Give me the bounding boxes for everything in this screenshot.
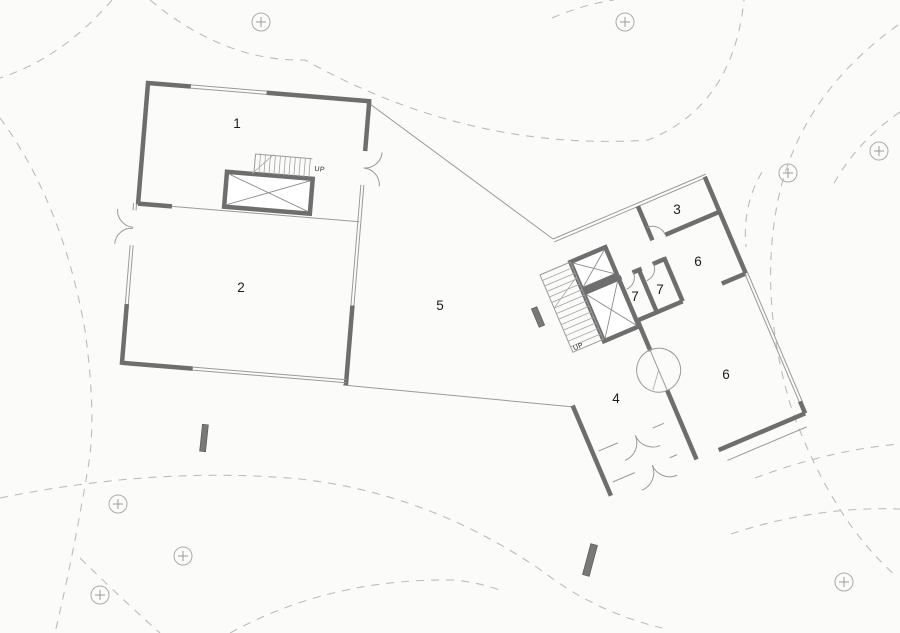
wall bbox=[146, 83, 191, 87]
tree-trunk-marker-icon bbox=[91, 586, 109, 604]
tree-trunk-marker-icon bbox=[109, 495, 127, 513]
column-marker bbox=[582, 544, 597, 577]
tree-canopy-arc bbox=[0, 118, 92, 633]
tree-trunk-marker-icon bbox=[616, 13, 634, 31]
column-marker bbox=[200, 424, 209, 451]
floor-plan-drawing: UP bbox=[0, 0, 900, 633]
room-label-5: 5 bbox=[436, 298, 444, 313]
tree-canopy-arcs bbox=[0, 0, 900, 633]
wall bbox=[138, 81, 148, 205]
tree-canopy-arc bbox=[0, 0, 112, 78]
door-swing-arc bbox=[635, 428, 660, 453]
room-label-1: 1 bbox=[233, 116, 241, 131]
wall bbox=[722, 273, 746, 283]
window bbox=[191, 85, 267, 91]
room-label-3: 3 bbox=[673, 202, 681, 217]
door-swing-arc bbox=[635, 465, 660, 490]
tree-canopy-arc bbox=[552, 0, 614, 18]
deck-edge-lines bbox=[343, 104, 574, 407]
room-label-6-upper: 6 bbox=[694, 254, 702, 269]
room-label-6-lower: 6 bbox=[722, 367, 730, 382]
window bbox=[191, 88, 267, 94]
annex-wall bbox=[613, 473, 635, 482]
tree-canopy-arc bbox=[771, 25, 898, 577]
tree-trunk-marker-icon bbox=[779, 164, 797, 182]
wall bbox=[667, 390, 696, 459]
door-swing-arc bbox=[115, 227, 133, 245]
wall bbox=[122, 363, 193, 369]
tree-canopy-arc bbox=[832, 112, 900, 187]
door-swing-arc bbox=[618, 435, 643, 460]
tree-canopy-arc bbox=[731, 509, 900, 534]
room-label-2: 2 bbox=[237, 280, 245, 295]
wall bbox=[639, 270, 657, 312]
wall bbox=[346, 306, 353, 386]
floor-plan-canvas: UP bbox=[0, 0, 900, 633]
door-swing-arc bbox=[364, 151, 382, 169]
window bbox=[133, 203, 134, 210]
wall bbox=[638, 301, 683, 320]
door-swing-arc bbox=[652, 458, 677, 483]
deck-edge-upper bbox=[370, 104, 553, 239]
room-label-7-right: 7 bbox=[656, 282, 664, 297]
annex-wall bbox=[670, 455, 677, 458]
wall bbox=[122, 304, 127, 365]
room-label-4: 4 bbox=[612, 391, 620, 406]
wall bbox=[800, 401, 805, 413]
wall bbox=[365, 101, 369, 151]
tree-trunk-marker-icon bbox=[252, 13, 270, 31]
wall bbox=[638, 206, 652, 240]
tree-trunk-marker-icon bbox=[835, 573, 853, 591]
annex-wall bbox=[653, 423, 664, 428]
annex-wall bbox=[598, 443, 617, 451]
window bbox=[193, 370, 346, 383]
door-swing-arc bbox=[116, 209, 134, 227]
tree-trunk-markers bbox=[91, 13, 888, 604]
tree-canopy-arc bbox=[745, 172, 762, 247]
wall bbox=[664, 257, 683, 301]
window bbox=[193, 367, 346, 380]
circular-element-radial bbox=[647, 370, 665, 390]
tree-canopy-arc bbox=[230, 580, 502, 633]
wall bbox=[705, 177, 746, 274]
tree-trunk-marker-icon bbox=[870, 142, 888, 160]
wall bbox=[719, 413, 806, 450]
stair-up-label-left: UP bbox=[314, 166, 325, 174]
building-right: UP bbox=[510, 174, 812, 508]
wall bbox=[267, 93, 372, 102]
tree-trunk-marker-icon bbox=[174, 547, 192, 565]
deck-edge-lower bbox=[343, 385, 574, 407]
column-marker bbox=[531, 307, 544, 328]
wall bbox=[573, 406, 611, 496]
room-label-7-left: 7 bbox=[631, 289, 639, 304]
circular-element-diameter bbox=[650, 350, 667, 391]
window bbox=[745, 274, 800, 403]
column-markers bbox=[200, 307, 598, 577]
window bbox=[136, 203, 137, 210]
wall bbox=[138, 204, 172, 207]
tree-canopy-arc bbox=[0, 475, 662, 628]
building-left: UP bbox=[105, 79, 387, 386]
walkway-edge bbox=[554, 177, 707, 242]
window bbox=[748, 273, 803, 402]
door-swing-arc bbox=[362, 168, 380, 186]
tree-canopy-arc bbox=[755, 444, 900, 478]
stair-up-label-right: UP bbox=[572, 342, 584, 352]
tree-canopy-arc bbox=[80, 558, 160, 633]
